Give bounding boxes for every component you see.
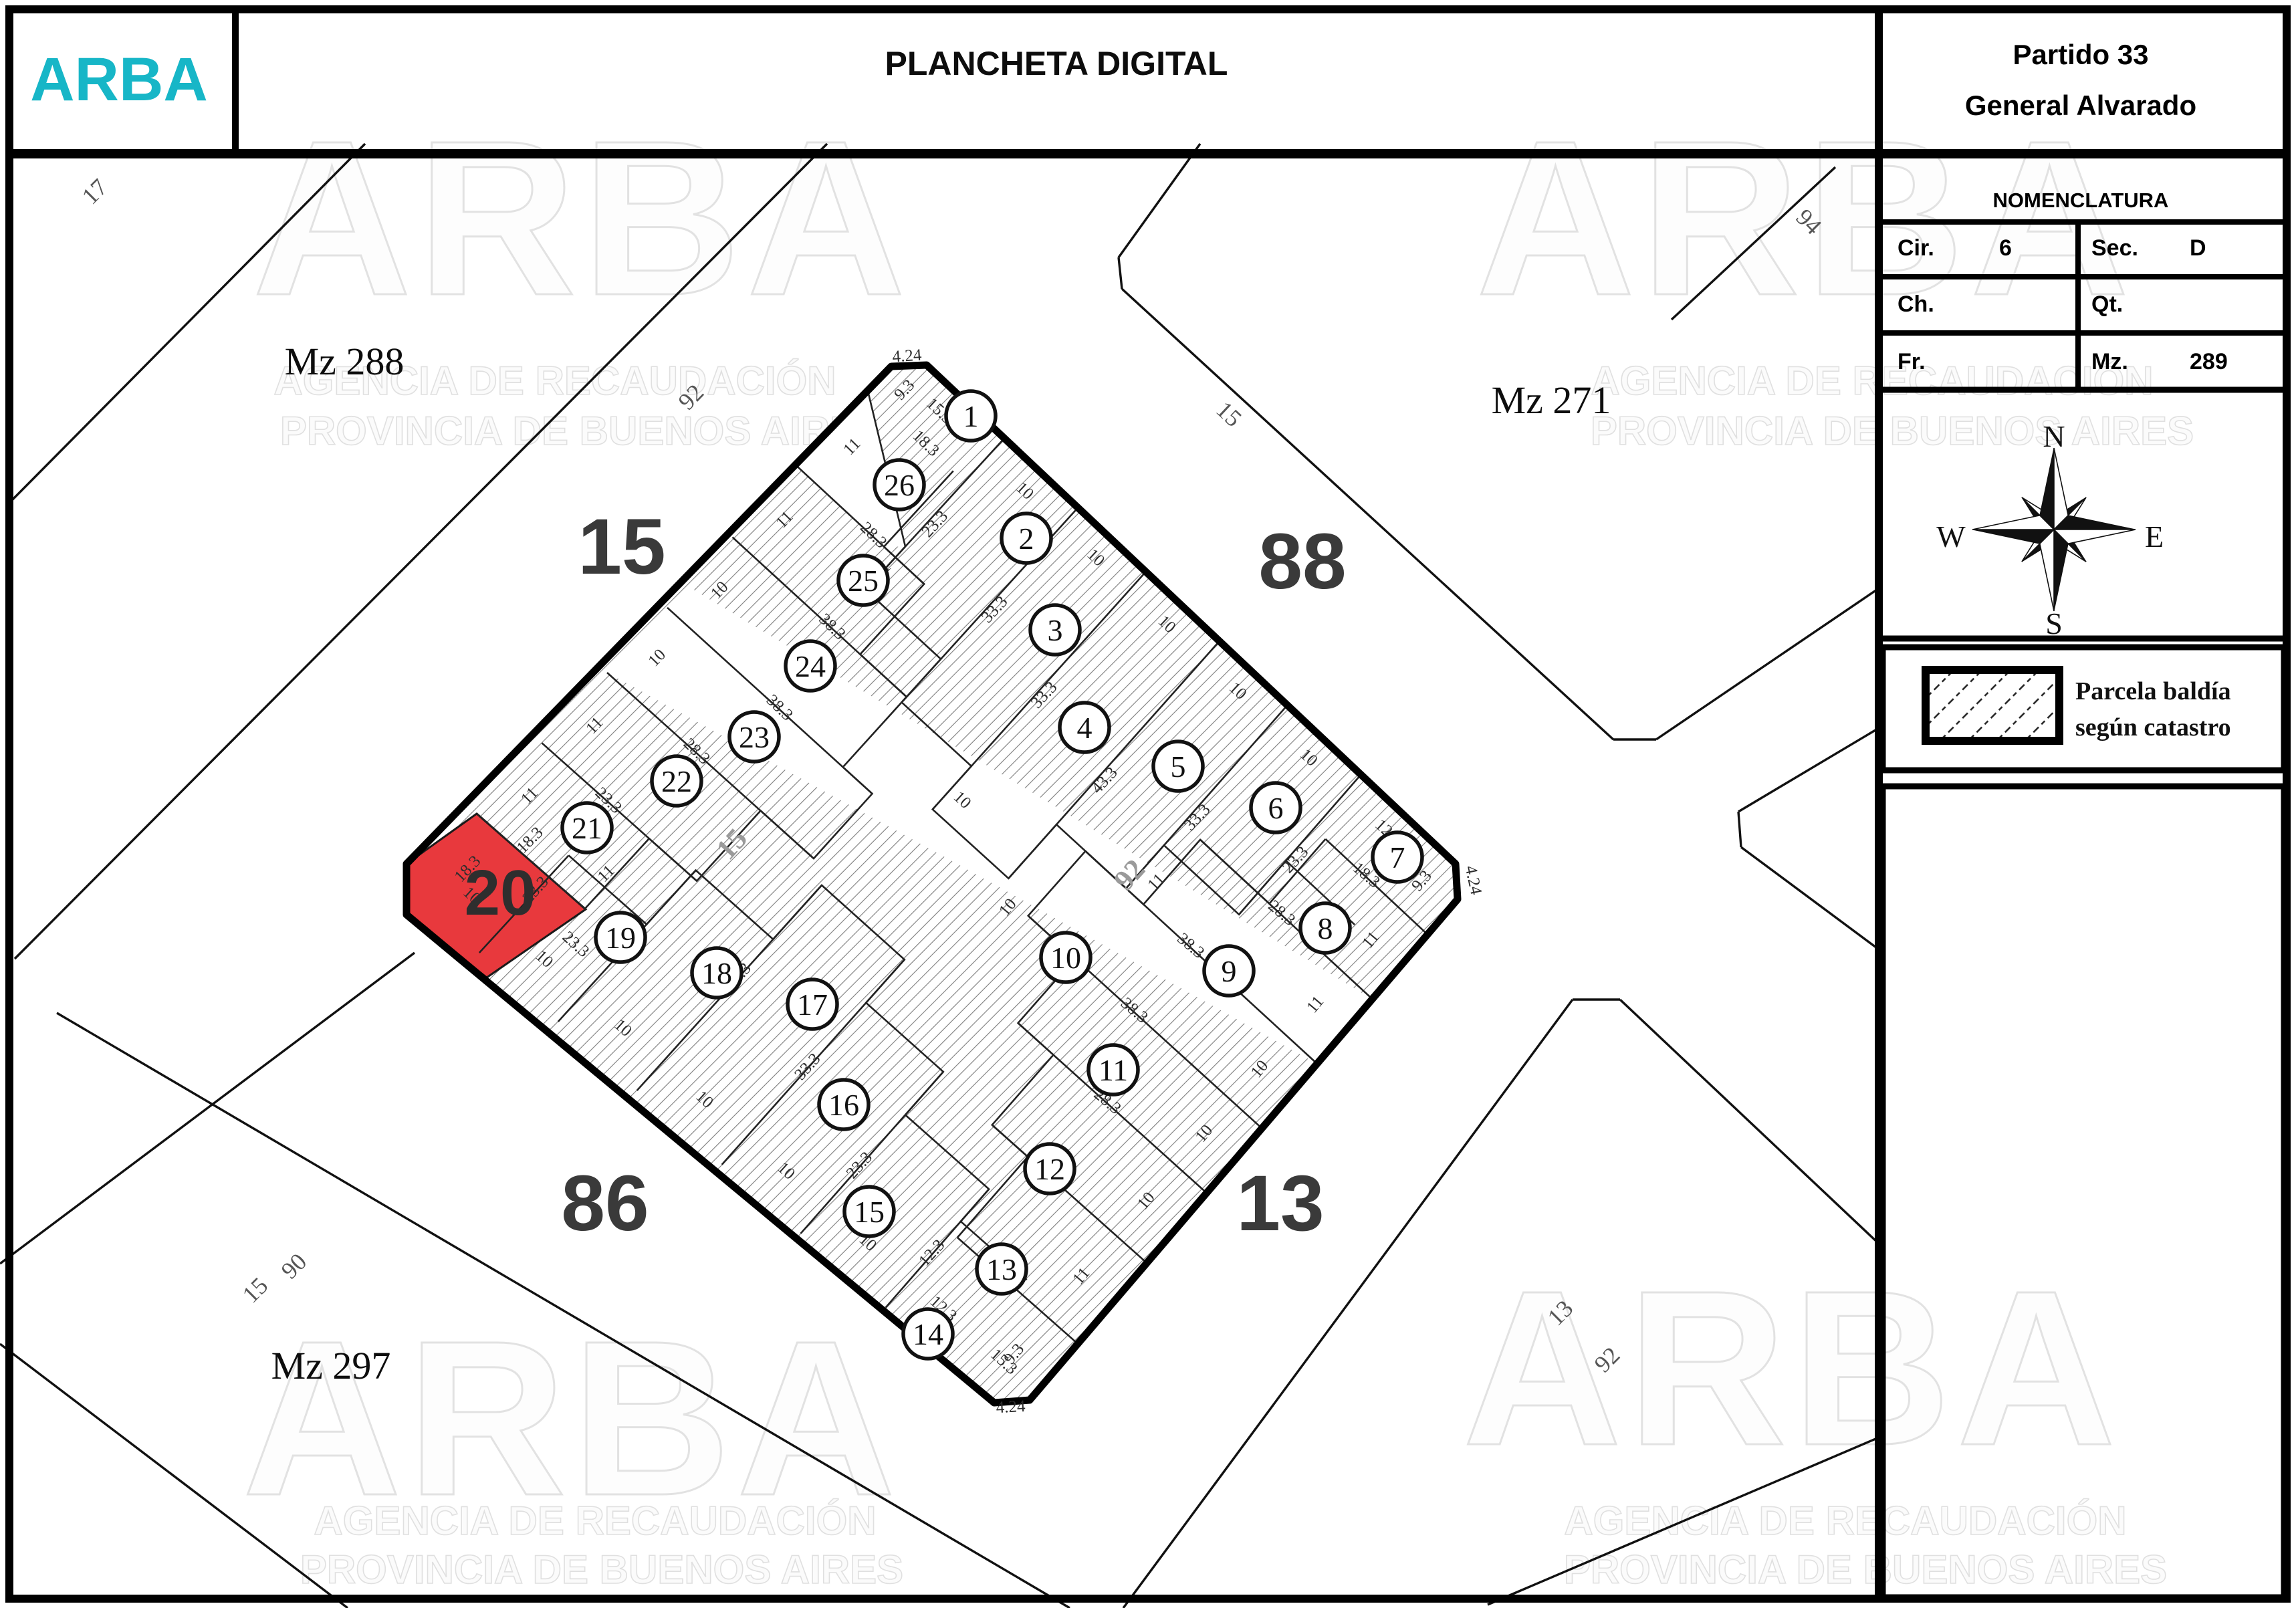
parcel-number: 26 — [884, 468, 915, 502]
parcel-18[interactable]: 18 — [692, 948, 741, 998]
compass-n-label: N — [2043, 419, 2065, 453]
dimension-label: 4.24 — [996, 1397, 1026, 1417]
parcel-22[interactable]: 22 — [652, 756, 701, 806]
watermark-group: ARBAAGENCIA DE RECAUDACIÓNPROVINCIA DE B… — [252, 94, 911, 453]
partido-name: General Alvarado — [1965, 90, 2196, 121]
parcel-11[interactable]: 11 — [1088, 1045, 1138, 1095]
parcel-8[interactable]: 8 — [1300, 903, 1350, 953]
nomenclatura-value: 6 — [1999, 235, 2012, 261]
parcel-number: 10 — [1050, 941, 1081, 975]
watermark-arba: ARBA — [252, 94, 911, 341]
parcel-number: 6 — [1268, 791, 1284, 825]
cadastral-map-canvas: ARBAAGENCIA DE RECAUDACIÓNPROVINCIA DE B… — [0, 0, 2296, 1608]
legend-hatch-swatch — [1926, 670, 2059, 741]
nomenclatura-value: 289 — [2190, 349, 2228, 374]
watermark-line2: PROVINCIA DE BUENOS AIRES — [300, 1547, 903, 1592]
parcel-9[interactable]: 9 — [1204, 946, 1254, 996]
parcel-5[interactable]: 5 — [1153, 741, 1203, 791]
nomenclatura-label: Fr. — [1898, 349, 1926, 374]
parcel-number: 4 — [1077, 711, 1093, 745]
watermark-group: ARBAAGENCIA DE RECAUDACIÓNPROVINCIA DE B… — [242, 1294, 903, 1592]
arba-logo: ARBA — [30, 45, 208, 114]
parcel-number: 19 — [605, 921, 636, 955]
compass-w-label: W — [1936, 520, 1966, 554]
parcel-14[interactable]: 14 — [903, 1309, 953, 1359]
watermark-line1: AGENCIA DE RECAUDACIÓN — [1591, 358, 2153, 403]
parcel-number: 18 — [701, 956, 732, 990]
watermark-line1: AGENCIA DE RECAUDACIÓN — [314, 1498, 876, 1543]
compass-e-label: E — [2145, 520, 2164, 554]
parcel-number: 8 — [1318, 911, 1333, 945]
parcel-number: 22 — [661, 764, 692, 798]
parcel-2[interactable]: 2 — [1002, 513, 1051, 563]
watermark-line2: PROVINCIA DE BUENOS AIRES — [1564, 1547, 2167, 1592]
partido-number: Partido 33 — [2013, 39, 2148, 70]
parcel-number: 25 — [848, 564, 879, 598]
page-title: PLANCHETA DIGITAL — [885, 45, 1228, 82]
parcel-number: 14 — [913, 1317, 943, 1351]
nomenclatura-label: Qt. — [2091, 292, 2123, 317]
manzana-label: Mz 288 — [285, 340, 405, 383]
nomenclatura-label: Cir. — [1898, 235, 1934, 261]
parcel-23[interactable]: 23 — [729, 712, 779, 762]
watermark-arba: ARBA — [1462, 1244, 2121, 1491]
parcel-number: 5 — [1171, 750, 1186, 784]
parcel-13[interactable]: 13 — [977, 1244, 1026, 1294]
parcel-24[interactable]: 24 — [786, 641, 835, 691]
parcel-19[interactable]: 19 — [596, 913, 645, 962]
manzana-label: Mz 271 — [1492, 378, 1611, 422]
street-number-large: 88 — [1258, 518, 1346, 606]
parcel-6[interactable]: 6 — [1251, 783, 1300, 832]
watermark-line2: PROVINCIA DE BUENOS AIRES — [280, 409, 883, 453]
selected-parcel-number: 20 — [465, 857, 536, 929]
parcel-16[interactable]: 16 — [819, 1080, 869, 1129]
parcel-1[interactable]: 1 — [946, 391, 996, 441]
parcel-number: 1 — [963, 399, 979, 433]
parcel-21[interactable]: 21 — [562, 803, 612, 852]
parcel-number: 13 — [986, 1252, 1017, 1286]
street-number-large: 86 — [561, 1159, 649, 1248]
nomenclatura-label: Mz. — [2091, 349, 2128, 374]
nomenclatura-title: NOMENCLATURA — [1993, 189, 2169, 212]
parcel-number: 11 — [1099, 1053, 1128, 1087]
parcel-10[interactable]: 10 — [1041, 933, 1090, 982]
dimension-label: 4.24 — [892, 346, 923, 366]
parcel-number: 7 — [1390, 840, 1405, 875]
nomenclatura-label: Ch. — [1898, 292, 1934, 317]
parcel-25[interactable]: 25 — [838, 556, 888, 605]
nomenclatura-label: Sec. — [2091, 235, 2138, 261]
street-number-large: 13 — [1236, 1159, 1324, 1248]
parcel-15[interactable]: 15 — [844, 1187, 894, 1236]
parcel-number: 16 — [828, 1088, 859, 1122]
parcel-7[interactable]: 7 — [1373, 832, 1422, 882]
parcel-4[interactable]: 4 — [1060, 703, 1109, 752]
parcel-number: 17 — [797, 988, 828, 1022]
parcel-17[interactable]: 17 — [788, 980, 837, 1029]
parcel-12[interactable]: 12 — [1025, 1144, 1074, 1193]
compass-s-label: S — [2045, 606, 2063, 641]
legend-text-line2: según catastro — [2075, 713, 2231, 741]
manzana-label: Mz 297 — [271, 1344, 391, 1387]
parcel-number: 21 — [572, 811, 602, 845]
parcel-26[interactable]: 26 — [875, 460, 924, 509]
parcel-number: 24 — [795, 649, 826, 683]
parcel-3[interactable]: 3 — [1030, 605, 1080, 655]
watermark-line2: PROVINCIA DE BUENOS AIRES — [1591, 409, 2194, 453]
parcel-number: 3 — [1048, 613, 1063, 647]
parcel-number: 23 — [739, 720, 770, 754]
parcel-number: 2 — [1019, 522, 1034, 556]
parcel-number: 9 — [1222, 954, 1237, 988]
street-number-large: 15 — [578, 503, 665, 591]
parcel-number: 15 — [854, 1195, 885, 1229]
watermark-group: ARBAAGENCIA DE RECAUDACIÓNPROVINCIA DE B… — [1462, 1244, 2167, 1592]
parcel-number: 12 — [1034, 1152, 1065, 1186]
plancheta-digital-page: ARBAAGENCIA DE RECAUDACIÓNPROVINCIA DE B… — [0, 0, 2296, 1608]
legend-text-line1: Parcela baldía — [2075, 677, 2231, 705]
nomenclatura-value: D — [2190, 235, 2206, 261]
